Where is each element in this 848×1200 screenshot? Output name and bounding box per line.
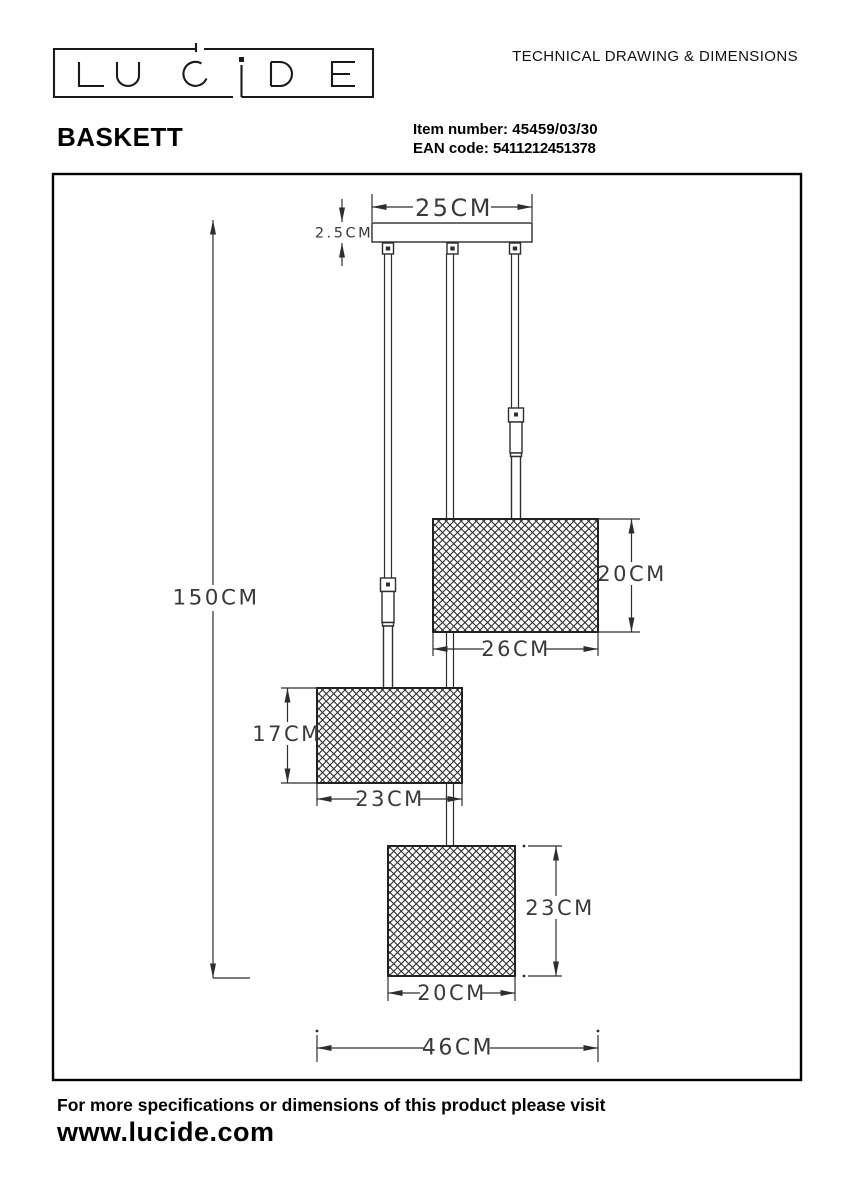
dim-total-height: 150CM bbox=[172, 220, 259, 978]
dim-shade-medium-height: 17CM bbox=[252, 688, 322, 783]
dim-shade-large-height: 20CM bbox=[597, 519, 667, 632]
dim-label-shade-small-width: 20CM bbox=[417, 981, 487, 1005]
lucide-logo bbox=[54, 43, 373, 97]
dim-shade-small-width: 20CM bbox=[388, 976, 515, 1005]
shade-large bbox=[433, 519, 598, 632]
dim-canopy-width: 25CM bbox=[372, 193, 532, 222]
dim-canopy-height: 2.5CM bbox=[315, 199, 373, 266]
dim-shade-medium-width: 23CM bbox=[317, 783, 462, 811]
cord-left bbox=[381, 254, 396, 688]
dim-total-width: 46CM bbox=[316, 1030, 600, 1062]
footer-note: For more specifications or dimensions of… bbox=[57, 1095, 605, 1116]
footer-website: www.lucide.com bbox=[57, 1117, 275, 1148]
dim-label-shade-medium-height: 17CM bbox=[252, 722, 322, 746]
logo-i-dot bbox=[239, 57, 244, 62]
shade-medium bbox=[317, 688, 462, 783]
dim-label-shade-large-height: 20CM bbox=[597, 562, 667, 586]
dim-shade-large-width: 26CM bbox=[433, 632, 598, 661]
drawing-canvas: 25CM 2.5CM 150CM 20CM 26CM bbox=[0, 0, 848, 1200]
dim-label-total-width: 46CM bbox=[422, 1036, 494, 1061]
ceiling-plate bbox=[372, 223, 532, 254]
dim-label-shade-small-height: 23CM bbox=[525, 896, 595, 920]
cord-right bbox=[509, 254, 524, 519]
dim-label-shade-large-width: 26CM bbox=[481, 637, 551, 661]
dim-label-canopy-width: 25CM bbox=[415, 194, 493, 222]
dim-label-canopy-height: 2.5CM bbox=[315, 226, 373, 242]
dim-label-total-height: 150CM bbox=[172, 586, 259, 611]
shade-small bbox=[388, 846, 515, 976]
dim-label-shade-medium-width: 23CM bbox=[355, 787, 425, 811]
technical-drawing-page: TECHNICAL DRAWING & DIMENSIONS BASKETT I… bbox=[0, 0, 848, 1200]
dim-shade-small-height: 23CM bbox=[523, 845, 595, 978]
